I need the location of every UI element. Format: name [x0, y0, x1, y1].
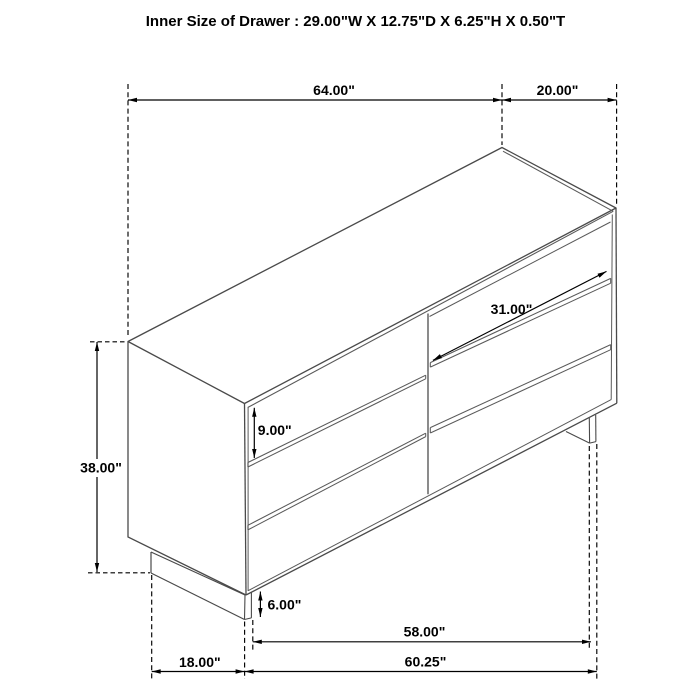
svg-text:9.00": 9.00"	[258, 422, 292, 438]
svg-text:64.00": 64.00"	[313, 82, 355, 98]
svg-text:60.25": 60.25"	[405, 653, 447, 669]
svg-text:6.00": 6.00"	[268, 597, 302, 613]
svg-text:38.00": 38.00"	[80, 459, 122, 475]
svg-text:58.00": 58.00"	[404, 623, 446, 639]
svg-text:20.00": 20.00"	[537, 82, 579, 98]
svg-text:Inner Size of Drawer : 29.00"W: Inner Size of Drawer : 29.00"W X 12.75"D…	[146, 13, 565, 30]
svg-text:31.00": 31.00"	[491, 301, 533, 317]
svg-text:18.00": 18.00"	[179, 654, 221, 670]
